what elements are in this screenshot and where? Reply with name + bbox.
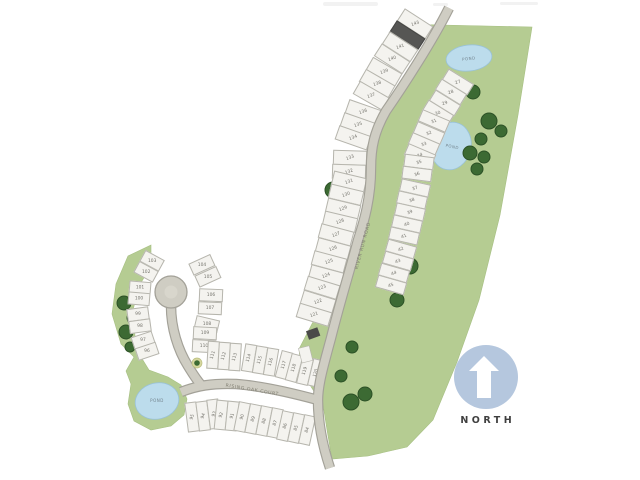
north-arrow-glyph [452, 345, 516, 409]
pond-label: POND [462, 55, 476, 61]
north-arrow-icon [454, 345, 518, 409]
pond-label: POND [445, 143, 459, 151]
north-indicator: NORTH [452, 345, 520, 426]
mini-parcel [298, 346, 312, 363]
road-casing [318, 8, 449, 468]
site-plan-map: 1431421411401391381371361351341331321311… [0, 0, 640, 480]
road-surface [318, 8, 449, 468]
tree-icon [194, 360, 200, 366]
cul-de-sac-island [165, 286, 178, 299]
pond-label: POND [150, 398, 164, 403]
entrance-structure-icon [306, 327, 320, 340]
north-label: NORTH [452, 415, 520, 426]
roads-layer: RIVER RUN ROADRISING OAK COURTPONDPONDPO… [0, 0, 640, 480]
